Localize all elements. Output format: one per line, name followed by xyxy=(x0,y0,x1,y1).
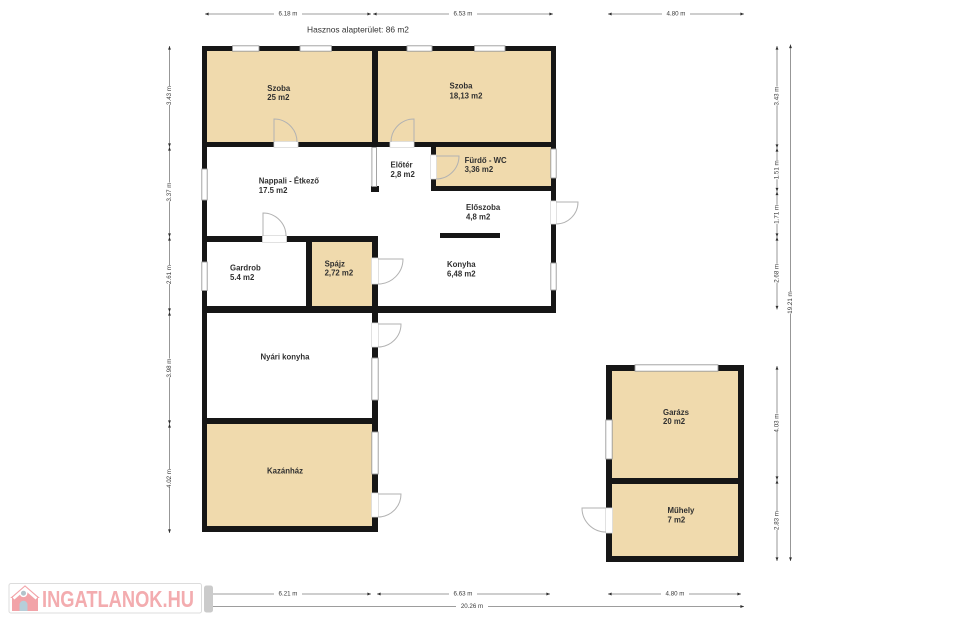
svg-text:25 m2: 25 m2 xyxy=(267,93,290,102)
svg-text:Kazánház: Kazánház xyxy=(267,467,303,476)
svg-text:20 m2: 20 m2 xyxy=(663,417,686,426)
svg-text:1.51 m: 1.51 m xyxy=(774,160,781,179)
svg-text:2,72 m2: 2,72 m2 xyxy=(325,269,354,278)
svg-text:5.4 m2: 5.4 m2 xyxy=(230,273,255,282)
svg-text:3.43 m: 3.43 m xyxy=(166,86,173,105)
svg-text:3,36 m2: 3,36 m2 xyxy=(465,165,494,174)
svg-text:4.03 m: 4.03 m xyxy=(774,414,781,433)
svg-text:INGATLANOK.HU: INGATLANOK.HU xyxy=(42,586,194,612)
svg-text:4.02 m: 4.02 m xyxy=(166,469,173,488)
svg-text:6.63 m: 6.63 m xyxy=(454,591,473,598)
svg-text:6.18 m: 6.18 m xyxy=(279,11,298,18)
svg-text:6.53 m: 6.53 m xyxy=(454,11,473,18)
svg-text:18,13 m2: 18,13 m2 xyxy=(450,91,484,100)
svg-text:4.80 m: 4.80 m xyxy=(666,591,685,598)
svg-text:6.21 m: 6.21 m xyxy=(279,591,298,598)
svg-text:4,8 m2: 4,8 m2 xyxy=(466,212,491,221)
svg-text:Szoba: Szoba xyxy=(267,84,291,93)
svg-text:3.37 m: 3.37 m xyxy=(166,183,173,202)
svg-text:Nyári konyha: Nyári konyha xyxy=(261,353,311,362)
svg-text:2.83 m: 2.83 m xyxy=(774,511,781,530)
svg-text:2.68 m: 2.68 m xyxy=(774,264,781,283)
svg-text:7 m2: 7 m2 xyxy=(668,515,686,524)
svg-text:Szoba: Szoba xyxy=(450,82,474,91)
svg-text:1.71 m: 1.71 m xyxy=(774,205,781,224)
svg-text:Hasznos alapterület: 86 m2: Hasznos alapterület: 86 m2 xyxy=(307,25,409,35)
svg-text:4.80 m: 4.80 m xyxy=(667,11,686,18)
svg-text:Garázs: Garázs xyxy=(663,408,690,417)
svg-text:2.61 m: 2.61 m xyxy=(166,265,173,284)
svg-text:Gardrob: Gardrob xyxy=(230,264,261,273)
svg-text:Spájz: Spájz xyxy=(325,260,345,269)
svg-text:2,8 m2: 2,8 m2 xyxy=(391,170,416,179)
svg-text:17.5 m2: 17.5 m2 xyxy=(259,186,288,195)
svg-text:6,48 m2: 6,48 m2 xyxy=(447,270,476,279)
svg-text:20.26 m: 20.26 m xyxy=(461,603,483,610)
svg-text:Nappali - Étkező: Nappali - Étkező xyxy=(259,177,319,186)
svg-text:Előtér: Előtér xyxy=(391,160,413,169)
svg-text:3.98 m: 3.98 m xyxy=(166,359,173,378)
svg-text:Konyha: Konyha xyxy=(447,260,476,269)
svg-text:Előszoba: Előszoba xyxy=(466,203,501,212)
svg-text:Fürdő - WC: Fürdő - WC xyxy=(465,156,507,165)
svg-text:3.43 m: 3.43 m xyxy=(774,87,781,106)
svg-text:Műhely: Műhely xyxy=(668,506,696,515)
svg-text:19.21 m: 19.21 m xyxy=(787,291,794,313)
